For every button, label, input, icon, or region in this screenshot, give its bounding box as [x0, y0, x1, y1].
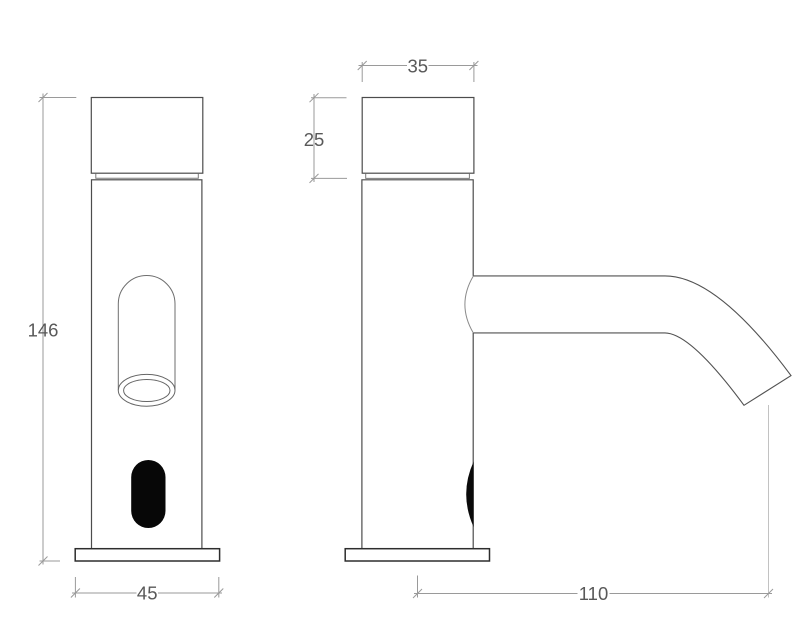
- svg-text:25: 25: [304, 129, 325, 150]
- svg-text:35: 35: [408, 56, 429, 77]
- svg-text:146: 146: [28, 320, 59, 341]
- svg-text:110: 110: [579, 583, 609, 604]
- svg-text:45: 45: [137, 583, 158, 604]
